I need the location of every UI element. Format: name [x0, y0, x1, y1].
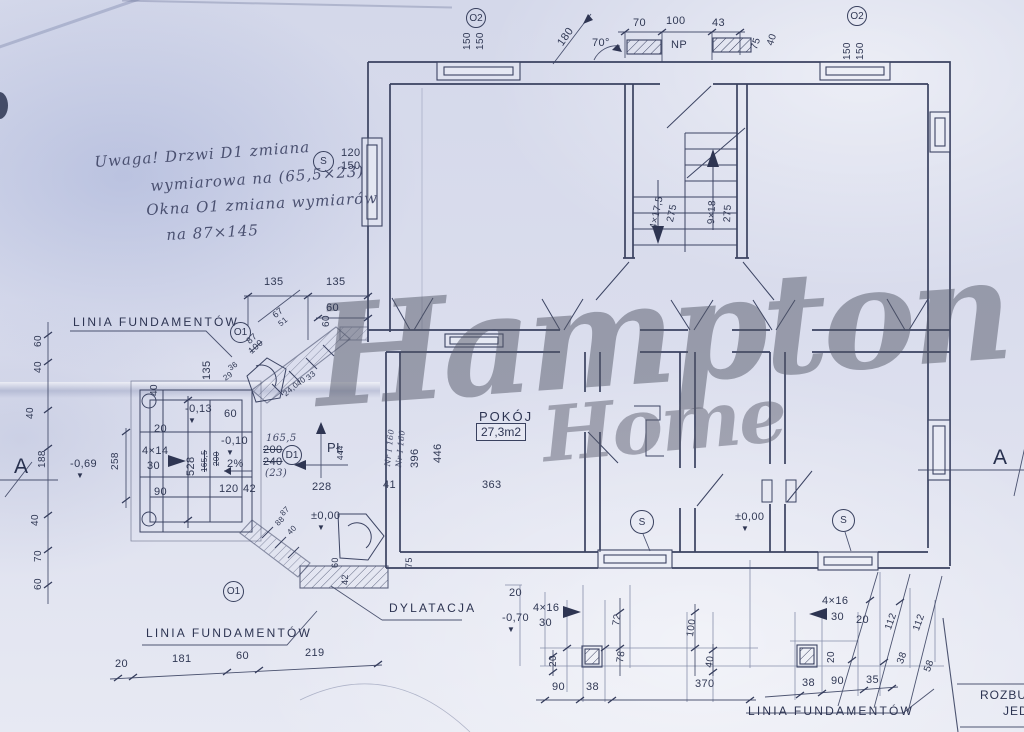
- dim-label: 181: [172, 654, 192, 665]
- dim-label: 70°: [592, 38, 610, 49]
- dim-label: 396: [410, 448, 421, 468]
- level-marker: -0,13: [185, 404, 212, 415]
- callout-o1: O1: [223, 581, 244, 602]
- linia-fundamentow-bottom-left: LINIA FUNDAMENTÓW: [146, 627, 312, 639]
- dim-label: 40: [150, 384, 160, 396]
- dim-label: 60: [224, 409, 237, 420]
- callout-s: S: [313, 151, 334, 172]
- dim-label: 20: [115, 659, 128, 670]
- title-block-line1: ROZBU: [980, 688, 1024, 702]
- room-area-badge: 27,3m2: [476, 423, 526, 441]
- level-marker: ±0,00: [735, 512, 764, 523]
- level-triangle-icon: ▼: [317, 524, 325, 532]
- dim-label: 150: [463, 32, 473, 50]
- dim-label: 188: [38, 450, 48, 468]
- dim-label: 30: [147, 461, 160, 472]
- dim-label: 135: [264, 277, 284, 288]
- dim-label: 370: [695, 679, 715, 690]
- dylatacja-label: DYLATACJA: [389, 602, 476, 614]
- dim-label: 30: [539, 618, 552, 629]
- dim-label: 20: [509, 588, 522, 599]
- dim-label: 43: [712, 18, 725, 29]
- dim-label: 40: [31, 514, 41, 526]
- dim-label: 135: [202, 360, 213, 380]
- dim-label: 363: [482, 480, 502, 491]
- windows: [362, 62, 950, 570]
- dim-label: 90: [831, 676, 844, 687]
- dim-label: 9×18: [707, 200, 718, 225]
- dim-label: 20: [827, 651, 837, 663]
- dim-label: 72: [612, 613, 624, 626]
- dim-label: 40: [26, 407, 36, 419]
- linia-fundamentow-left: LINIA FUNDAMENTÓW: [73, 316, 239, 328]
- dim-label: 30: [831, 612, 844, 623]
- dim-label: 60: [34, 578, 44, 590]
- callout-d1: D1: [282, 445, 302, 465]
- dim-label: 528: [186, 456, 197, 476]
- dim-label: 60: [326, 303, 339, 314]
- dim-label: 200: [263, 445, 283, 456]
- dim-label: 35: [866, 675, 879, 686]
- dim-label: 20: [856, 615, 869, 626]
- callout-o2: O2: [847, 6, 867, 26]
- room-name-pokoj: POKÓJ: [479, 409, 533, 424]
- dim-label: 4×14: [142, 446, 168, 457]
- dim-label: 120: [341, 148, 361, 159]
- dim-label: (23): [265, 469, 287, 479]
- dim-label: 444: [337, 445, 345, 460]
- dim-label: 60: [34, 335, 44, 347]
- level-marker: -0,10: [221, 436, 248, 447]
- dim-label: 165,5: [201, 450, 209, 472]
- dim-label: 150: [476, 32, 486, 50]
- foundation-grid: [300, 88, 944, 732]
- dim-label: 60: [331, 557, 340, 568]
- dim-label: 150: [856, 42, 866, 60]
- dim-label: 4×16: [533, 603, 559, 614]
- level-triangle-icon: ▼: [188, 417, 196, 425]
- dim-label: 70: [633, 18, 646, 29]
- door-dim-new: 165,5: [266, 434, 297, 444]
- callout-o1: O1: [230, 322, 251, 343]
- dim-label: 228: [312, 482, 332, 493]
- dim-label: 90: [154, 487, 167, 498]
- dim-label: 41: [383, 480, 396, 491]
- dim-label: 75: [405, 557, 414, 568]
- dim-label: 2%: [227, 459, 244, 470]
- dim-label: 42: [341, 574, 350, 585]
- dim-label: 70: [34, 550, 44, 562]
- level-marker: -0,69: [70, 459, 97, 470]
- section-marker-a-left: A: [14, 456, 28, 477]
- section-marker-a-right: A: [993, 447, 1007, 468]
- dim-label: 446: [433, 443, 444, 463]
- dim-label: 38: [802, 678, 815, 689]
- dim-label: 38: [586, 682, 599, 693]
- dim-label: 78: [616, 650, 628, 663]
- level-marker: -0,70: [502, 613, 529, 624]
- callout-s: S: [630, 510, 654, 534]
- dim-label: 240: [263, 457, 283, 468]
- dim-label: 258: [111, 452, 121, 470]
- callout-s: S: [832, 509, 855, 532]
- level-triangle-icon: ▼: [76, 472, 84, 480]
- stairs-and-doors: [392, 86, 928, 506]
- dim-label: 200: [213, 451, 221, 466]
- dim-label: 60: [322, 315, 332, 327]
- dim-label: 40: [34, 361, 44, 373]
- callout-o2: O2: [466, 8, 486, 28]
- dim-label: 42: [243, 484, 256, 495]
- dim-label: 120: [219, 484, 239, 495]
- level-triangle-icon: ▼: [226, 449, 234, 457]
- level-marker: ±0,00: [311, 511, 340, 522]
- dim-label: 40: [705, 655, 717, 668]
- linia-fundamentow-bottom-right: LINIA FUNDAMENTÓW: [748, 705, 914, 717]
- dim-label: 219: [305, 648, 325, 659]
- level-triangle-icon: ▼: [507, 626, 515, 634]
- np-label: NP: [671, 40, 687, 51]
- level-triangle-icon: ▼: [741, 525, 749, 533]
- walls: [368, 62, 950, 568]
- dim-label: 90: [552, 682, 565, 693]
- dim-label: 135: [326, 277, 346, 288]
- dim-label: 275: [723, 204, 734, 222]
- dim-label: 150: [843, 42, 853, 60]
- dim-label: 20: [549, 655, 559, 667]
- title-block-line2: JED: [1003, 704, 1024, 718]
- blueprint-scan: Hampton Home POKÓJ 27,3m2 ROZBU JED 1501…: [0, 0, 1024, 732]
- dim-label: 60: [236, 651, 249, 662]
- dim-label: 20: [154, 424, 167, 435]
- dim-label: 100: [666, 16, 686, 27]
- dim-label: 4×16: [822, 596, 848, 607]
- arrowheads: [168, 14, 827, 620]
